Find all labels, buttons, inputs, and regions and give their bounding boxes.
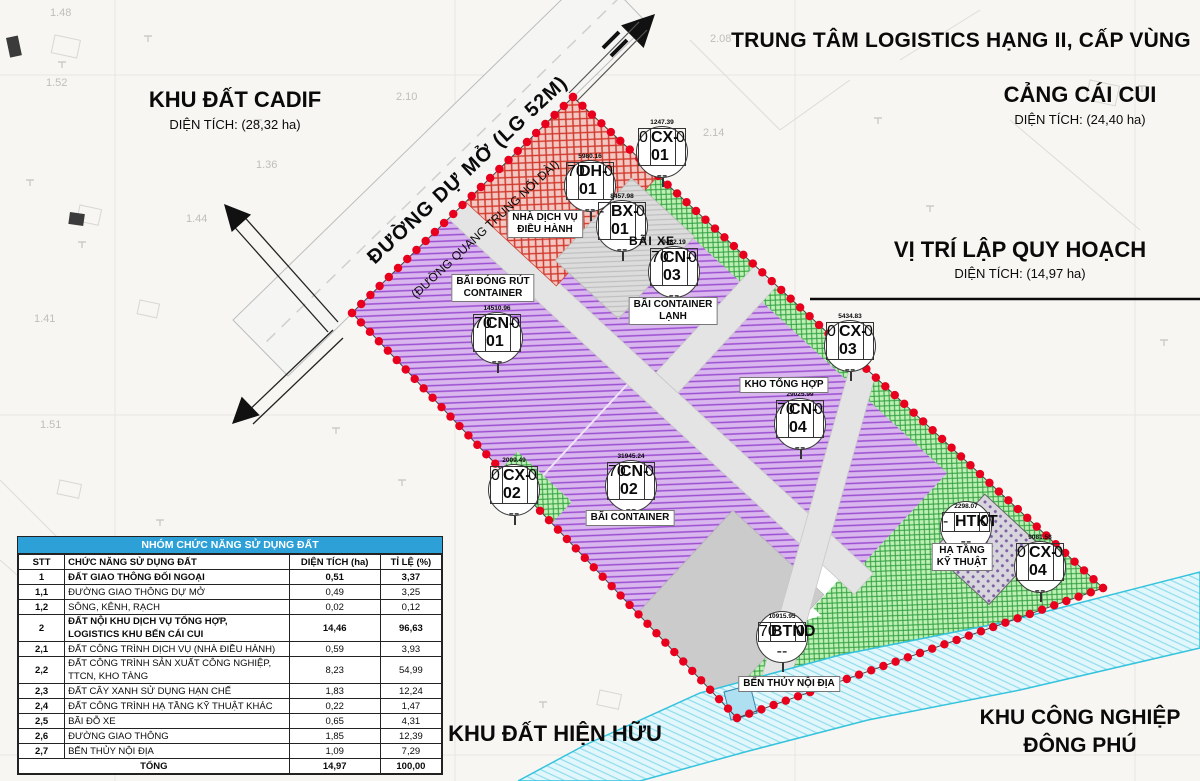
col-header-dien-tich: DIỆN TÍCH (ha): [289, 555, 380, 570]
svg-text:1.52: 1.52: [46, 77, 67, 89]
svg-text:1.51: 1.51: [40, 419, 61, 431]
land-use-table-grid: STT CHỨC NĂNG SỬ DỤNG ĐẤT DIỆN TÍCH (ha)…: [18, 554, 442, 774]
zone-badge-CX-01: 1247.390CX-010--: [634, 126, 690, 178]
table-row: 1,1ĐƯỜNG GIAO THÔNG DỰ MỞ0,493,25: [19, 585, 442, 600]
svg-text:2.14: 2.14: [703, 127, 724, 139]
area-label-cang-cai-cui: CẢNG CÁI CUI: [975, 82, 1185, 108]
zone-badge-CN-03: 9482.1970CN-030--: [646, 246, 702, 298]
table-row: 2,7BẾN THỦY NỘI ĐỊA1,097,29: [19, 744, 442, 759]
zone-label-BTND: BẾN THỦY NỘI ĐỊA: [738, 676, 840, 692]
table-row: 2,1ĐẤT CÔNG TRÌNH DỊCH VỤ (NHÀ ĐIỀU HÀNH…: [19, 642, 442, 657]
area-size-vi-tri-quy-hoach: DIỆN TÍCH: (14,97 ha): [860, 266, 1180, 281]
table-title: NHÓM CHỨC NĂNG SỬ DỤNG ĐẤT: [18, 537, 442, 554]
zone-badge-CN-01: 14510.9670CN-010--: [469, 312, 525, 364]
land-use-table: NHÓM CHỨC NĂNG SỬ DỤNG ĐẤT STT CHỨC NĂNG…: [17, 536, 443, 775]
zone-badge-CX-03: 5434.830CX-030--: [822, 320, 878, 372]
table-row: 2,3ĐẤT CÂY XANH SỬ DỤNG HẠN CHẾ1,8312,24: [19, 684, 442, 699]
table-row: 2,2ĐẤT CÔNG TRÌNH SẢN XUẤT CÔNG NGHIỆP,T…: [19, 657, 442, 684]
zone-badge-CX-02: 2009.490CX-020--: [486, 464, 542, 516]
table-row: 1,2SÔNG, KÊNH, RẠCH0,020,12: [19, 600, 442, 615]
zone-badge-CN-02: 31945.2470CN-020--: [603, 460, 659, 512]
table-row: 1ĐẤT GIAO THÔNG ĐỐI NGOẠI0,513,37: [19, 570, 442, 585]
area-size-cadif: DIỆN TÍCH: (28,32 ha): [125, 117, 345, 132]
area-label-dong-phu-line2: ĐÔNG PHÚ: [955, 734, 1200, 758]
col-header-ti-le: TỈ LỆ (%): [380, 555, 441, 570]
zone-badge-CX-04: 9081.580CX-040--: [1012, 541, 1068, 593]
zone-badge-BTND: 10915.9570BTND0--: [754, 611, 810, 663]
table-header-row: STT CHỨC NĂNG SỬ DỤNG ĐẤT DIỆN TÍCH (ha)…: [19, 555, 442, 570]
col-header-name: CHỨC NĂNG SỬ DỤNG ĐẤT: [65, 555, 290, 570]
planning-map-stage: 1.481.522.082.101.362.141.411.511.381.37…: [0, 0, 1200, 781]
table-row: 2,6ĐƯỜNG GIAO THÔNG1,8512,39: [19, 729, 442, 744]
area-label-vi-tri-quy-hoach: VỊ TRÍ LẬP QUY HOẠCH: [860, 237, 1180, 263]
svg-text:1.41: 1.41: [34, 313, 55, 325]
col-header-stt: STT: [19, 555, 65, 570]
svg-text:1.44: 1.44: [186, 213, 207, 225]
svg-text:1.36: 1.36: [256, 159, 277, 171]
zone-label-DH-01: NHÀ DỊCH VỤĐIỀU HÀNH: [507, 210, 583, 238]
area-label-cadif: KHU ĐẤT CADIF: [125, 87, 345, 113]
zone-label-CN-03: BÃI CONTAINERLẠNH: [629, 297, 718, 325]
zone-label-CN-04: KHO TỔNG HỢP: [739, 377, 828, 393]
zone-label-HTKT: HẠ TẦNGKỸ THUẬT: [932, 543, 993, 571]
svg-text:2.10: 2.10: [396, 91, 417, 103]
table-row: 2,4ĐẤT CÔNG TRÌNH HẠ TẦNG KỸ THUẬT KHÁC0…: [19, 699, 442, 714]
zone-badge-CN-04: 29025.9970CN-040--: [772, 398, 828, 450]
zone-label-CN-02: BÃI CONTAINER: [586, 510, 675, 526]
table-row: 2,5BÃI ĐỖ XE0,654,31: [19, 714, 442, 729]
area-label-hien-huu: KHU ĐẤT HIỆN HỮU: [430, 721, 680, 747]
area-size-cang-cai-cui: DIỆN TÍCH: (24,40 ha): [975, 112, 1185, 127]
zone-label-CN-01: BÃI ĐÓNG RÚTCONTAINER: [451, 274, 534, 302]
table-total-row: TỔNG14,97100,00: [19, 759, 442, 774]
svg-text:1.48: 1.48: [50, 7, 71, 19]
table-row: 2ĐẤT NỘI KHU DỊCH VỤ TỔNG HỢP,LOGISTICS …: [19, 615, 442, 642]
page-title: TRUNG TÂM LOGISTICS HẠNG II, CẤP VÙNG: [726, 29, 1196, 53]
area-label-dong-phu-line1: KHU CÔNG NGHIỆP: [955, 706, 1200, 730]
